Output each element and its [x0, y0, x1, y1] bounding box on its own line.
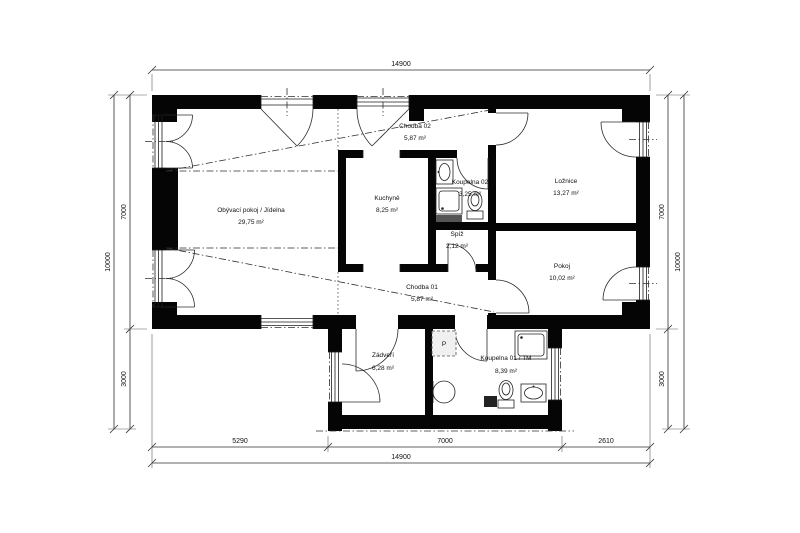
shower-curb-hatch: [436, 215, 462, 222]
dim-bottom-total: 14900: [391, 454, 411, 461]
room-label-zadveri: Zádveří: [372, 352, 394, 359]
room-area-zadveri: 6,28 m²: [372, 365, 395, 372]
sink-icon-k02: [436, 160, 453, 184]
room-label-chodba-02: Chodba 02: [399, 123, 431, 130]
dim-left-outer: 10000: [105, 252, 112, 272]
room-label-koupelna-02: Koupelna 02: [452, 179, 489, 186]
floor-plan-canvas: 14900 5290 7000 2610 14900 7000 3000 100…: [0, 0, 800, 533]
dim-left-inner-top: 7000: [121, 204, 128, 220]
boiler-icon: [433, 381, 455, 403]
casement-left-2: [166, 250, 195, 307]
dim-bottom-seg-2: 7000: [437, 438, 453, 445]
room-area-obyvaci-pokoj: 29,75 m²: [238, 219, 264, 226]
casement-left-1: [166, 115, 193, 168]
room-area-kuchyne: 8,25 m²: [376, 207, 399, 214]
window-bottom: [261, 315, 313, 329]
room-label-kuchyne: Kuchyně: [374, 195, 400, 202]
door-top-french: [261, 109, 313, 146]
entrance-door-frame: [328, 352, 342, 402]
dim-right-inner-top: 7000: [659, 204, 666, 220]
washer-symbol-label: P: [442, 341, 446, 348]
dim-bottom-seg-1: 5290: [232, 438, 248, 445]
door-loznice: [496, 113, 528, 145]
room-label-chodba-01: Chodba 01: [406, 284, 438, 291]
room-area-spiz: 2,12 m²: [446, 243, 469, 250]
toilet-icon-k01: [498, 381, 514, 409]
room-label-pokoj: Pokoj: [554, 263, 570, 270]
outer-walls: [152, 95, 650, 431]
door-pokoj: [496, 280, 529, 313]
floor-plan-drawing: 14900 5290 7000 2610 14900 7000 3000 100…: [0, 0, 800, 533]
sink-icon-k01: [521, 384, 546, 402]
room-area-koupelna-01: 8,39 m²: [495, 368, 518, 375]
window-koupelna01: [548, 348, 562, 400]
pedestal-block: [484, 396, 497, 407]
room-area-koupelna-02: 3,25 m²: [459, 191, 482, 198]
room-area-pokoj: 10,02 m²: [549, 275, 575, 282]
room-label-spiz: Spíž: [450, 231, 463, 238]
dim-right-outer: 10000: [675, 252, 682, 272]
room-area-loznice: 13,27 m²: [553, 190, 579, 197]
room-area-chodba-01: 5,87 m²: [411, 296, 434, 303]
room-area-chodba-02: 5,87 m²: [404, 135, 427, 142]
dim-left-inner-bottom: 3000: [121, 371, 128, 387]
reference-lines: [145, 88, 657, 431]
dim-right-inner-bottom: 3000: [659, 371, 666, 387]
room-label-koupelna-01: Koupelna 01 / TM: [480, 355, 531, 362]
dim-top-total: 14900: [391, 61, 411, 68]
room-label-obyvaci-pokoj: Obývací pokoj / Jídelna: [217, 207, 285, 214]
room-label-loznice: Ložnice: [555, 178, 578, 185]
dim-bottom-seg-3: 2610: [598, 438, 614, 445]
